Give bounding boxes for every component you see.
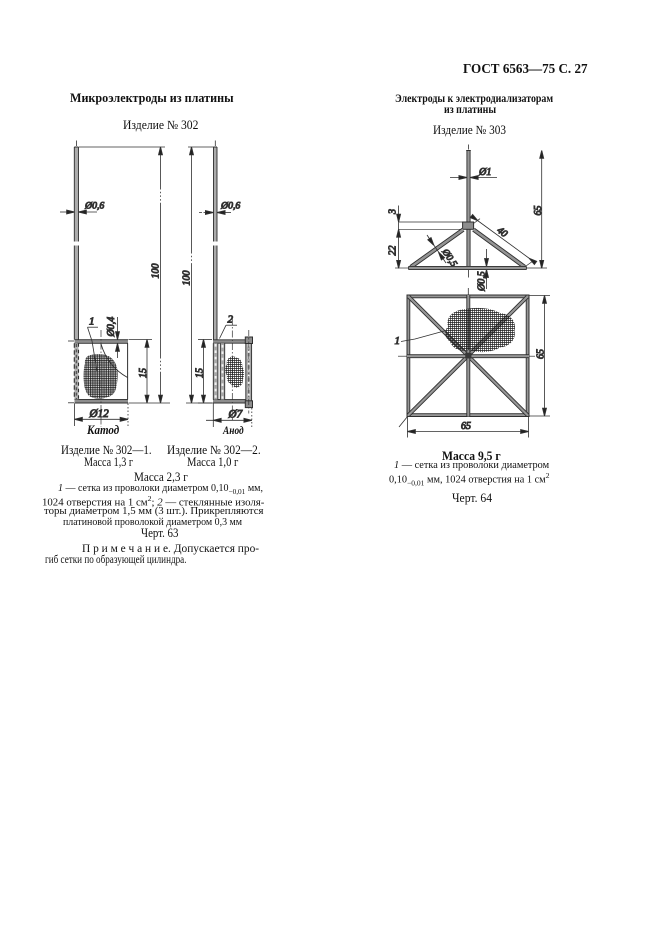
svg-text:Ø12: Ø12 [89, 408, 110, 420]
svg-text:100: 100 [182, 271, 193, 286]
svg-text:Ø0,5: Ø0,5 [477, 271, 488, 292]
svg-text:3: 3 [388, 209, 399, 215]
svg-text:Ø1: Ø1 [478, 167, 491, 178]
svg-text:65: 65 [536, 349, 547, 359]
svg-text:15: 15 [138, 368, 149, 378]
svg-text:22: 22 [388, 246, 399, 256]
svg-text:65: 65 [533, 206, 544, 216]
svg-text:15: 15 [195, 368, 206, 378]
svg-text:Ø0,6: Ø0,6 [220, 201, 240, 212]
svg-text:2: 2 [228, 314, 234, 326]
svg-text:1: 1 [89, 316, 95, 328]
svg-text:40: 40 [495, 225, 510, 240]
svg-text:Ø7: Ø7 [228, 409, 243, 421]
svg-text:Ø0,6: Ø0,6 [84, 201, 104, 212]
svg-text:1: 1 [395, 335, 401, 347]
svg-text:100: 100 [151, 264, 162, 279]
svg-text:Ø0,4: Ø0,4 [106, 317, 117, 338]
svg-text:65: 65 [461, 421, 471, 432]
